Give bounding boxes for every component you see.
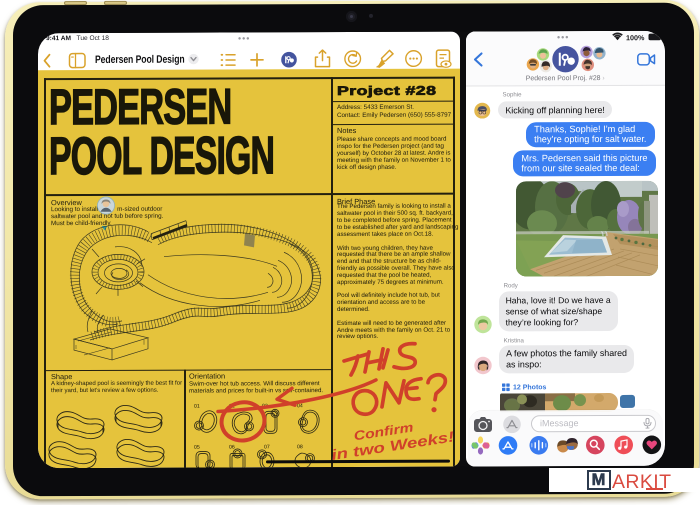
svg-text:100%: 100%: [626, 33, 645, 42]
